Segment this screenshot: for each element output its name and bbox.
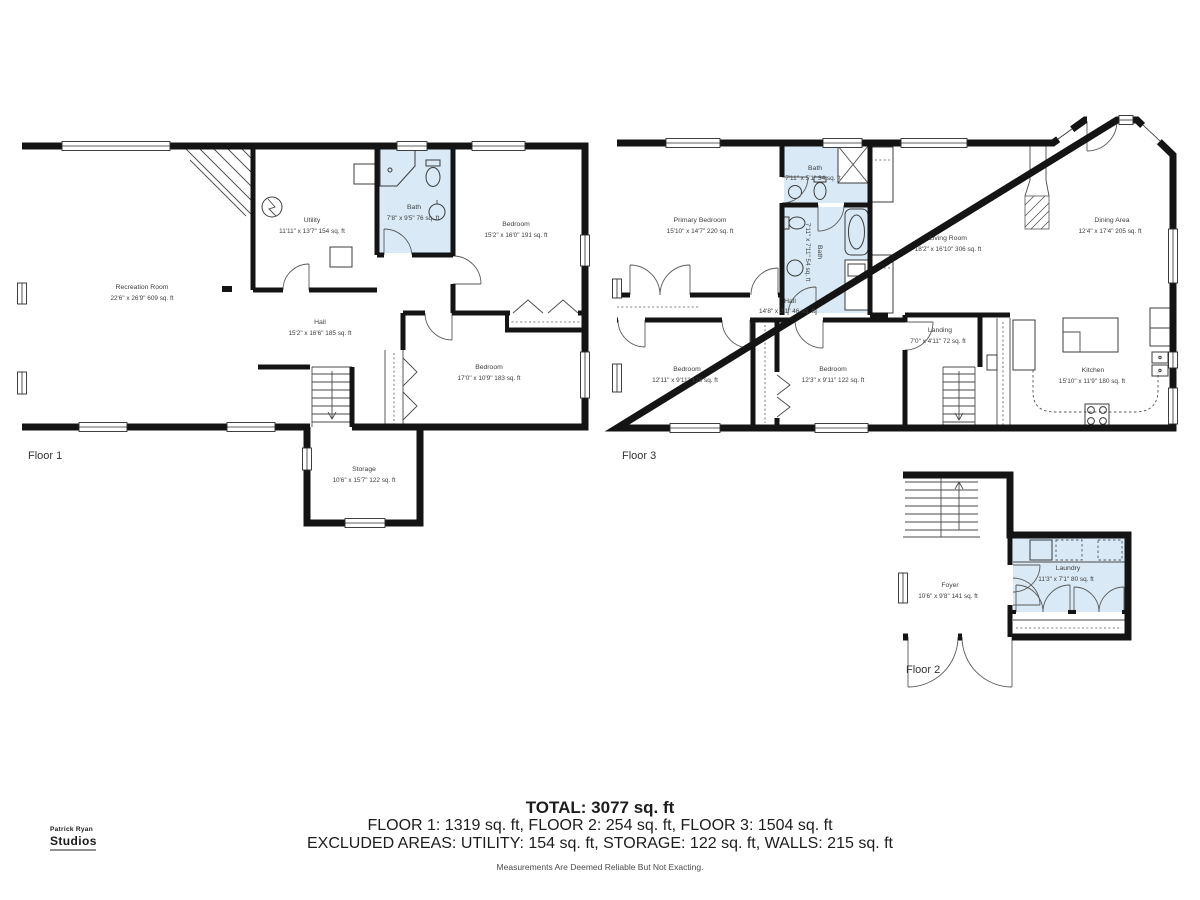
- room-label: Recreation Room: [116, 284, 169, 291]
- floor1-plan: Recreation Room 22'6" x 26'9" 609 sq. ft…: [18, 142, 590, 528]
- room-dims: 10'6" x 15'7" 122 sq. ft: [332, 477, 395, 484]
- fridge-icon: [1150, 308, 1172, 328]
- room-dims: 22'6" x 26'9" 609 sq. ft: [110, 295, 173, 302]
- bifold-door-icon: [403, 358, 417, 420]
- floorplan-drawing: Recreation Room 22'6" x 26'9" 609 sq. ft…: [0, 0, 1200, 780]
- floor2-porch: [1013, 620, 1125, 628]
- floorplan-page: Recreation Room 22'6" x 26'9" 609 sq. ft…: [0, 0, 1200, 900]
- logo-line2: Studios: [50, 835, 97, 847]
- room-dims: 15'2" x 16'6" 185 sq. ft: [288, 330, 351, 337]
- room-label: Kitchen: [1082, 367, 1105, 374]
- room-label: Bath: [808, 165, 822, 172]
- floor2-stairs-icon: [903, 475, 980, 537]
- floor-areas-text: FLOOR 1: 1319 sq. ft, FLOOR 2: 254 sq. f…: [0, 817, 1200, 835]
- utility-closet-icon: [330, 247, 352, 267]
- floor1-stairs-up-icon: [183, 146, 253, 216]
- studio-logo: Patrick Ryan Studios: [50, 827, 97, 851]
- room-label: Bedroom: [475, 364, 503, 371]
- floor3-pantry-closet: [997, 318, 1010, 428]
- room-label: Bedroom: [502, 221, 530, 228]
- room-dims: 12'3" x 9'11" 122 sq. ft: [802, 377, 865, 384]
- room-dims: 14'8" x 3'1" 46 sq. ft: [759, 308, 815, 315]
- room-dims: 11'11" x 13'7" 154 sq. ft: [279, 228, 345, 235]
- room-label: Living Room: [929, 235, 967, 242]
- fireplace-icon: [1025, 146, 1049, 229]
- floor2-plan: Foyer 10'6" x 9'8" 141 sq. ft Laundry 11…: [899, 475, 1129, 687]
- logo-tagline-bar: [50, 849, 96, 851]
- total-area-text: TOTAL: 3077 sq. ft: [0, 799, 1200, 817]
- room-dims: 7'11" x 5'1" 34 sq. ft: [785, 175, 841, 182]
- room-dims: 10'6" x 9'8" 141 sq. ft: [918, 593, 978, 600]
- room-dims: 18'2" x 16'10" 306 sq. ft: [915, 246, 982, 253]
- floor2-windows: [899, 573, 908, 603]
- utility-tub-icon: [354, 164, 376, 184]
- support-post: [222, 286, 232, 292]
- floor3-title: Floor 3: [622, 450, 656, 462]
- floor2-title: Floor 2: [906, 664, 940, 676]
- floor1-title: Floor 1: [28, 450, 62, 462]
- bifold-door-icon: [777, 375, 790, 417]
- area-summary: TOTAL: 3077 sq. ft FLOOR 1: 1319 sq. ft,…: [0, 799, 1200, 872]
- room-label: Bedroom: [673, 366, 701, 373]
- room-label: Dining Area: [1094, 217, 1129, 224]
- room-label: Landing: [928, 327, 952, 334]
- room-label: Bath: [816, 245, 823, 259]
- floor3-plan: Primary Bedroom 15'10" x 14'7" 220 sq. f…: [613, 116, 1178, 463]
- floor3-stairs-icon: [943, 367, 975, 428]
- kitchen-fixtures: [987, 308, 1172, 427]
- room-dims: 15'10" x 14'7" 220 sq. ft: [667, 228, 734, 235]
- wall-oven-icon: [1152, 352, 1168, 363]
- room-label: Primary Bedroom: [674, 217, 727, 224]
- floor1-stairs-down-icon: [312, 367, 352, 427]
- kitchen-cabinet-icon: [1013, 320, 1035, 370]
- room-label: Storage: [352, 466, 376, 473]
- counter-outline: [1033, 370, 1158, 412]
- floor1-room-labels: Recreation Room 22'6" x 26'9" 609 sq. ft…: [28, 204, 548, 484]
- bifold-door-icon: [513, 300, 578, 313]
- room-label: Bath: [407, 204, 421, 211]
- logo-line1: Patrick Ryan: [50, 827, 97, 834]
- room-dims: 17'0" x 10'9" 183 sq. ft: [457, 375, 520, 382]
- excluded-areas-text: EXCLUDED AREAS: UTILITY: 154 sq. ft, STO…: [0, 835, 1200, 853]
- disclaimer-text: Measurements Are Deemed Reliable But Not…: [0, 862, 1200, 872]
- room-dims: 12'4" x 17'4" 205 sq. ft: [1078, 228, 1141, 235]
- room-label: Hall: [314, 319, 326, 326]
- room-dims: 7'8" x 9'5" 76 sq. ft: [387, 215, 440, 222]
- room-label: Bedroom: [819, 366, 847, 373]
- room-dims: 7'11" x 7'11" 54 sq. ft: [804, 223, 811, 282]
- kitchen-island-icon: [1063, 318, 1118, 352]
- room-label: Laundry: [1056, 565, 1081, 572]
- room-dims: 12'11" x 9'11" 128 sq. ft: [652, 377, 718, 384]
- room-dims: 15'2" x 16'0" 191 sq. ft: [484, 232, 547, 239]
- room-dims: 7'0" x 4'11" 72 sq. ft: [910, 338, 966, 345]
- floor2-room-labels: Foyer 10'6" x 9'8" 141 sq. ft Laundry 11…: [906, 565, 1094, 676]
- room-dims: 11'3" x 7'1" 80 sq. ft: [1038, 576, 1094, 583]
- room-label: Utility: [304, 217, 321, 224]
- room-label: Foyer: [941, 582, 959, 589]
- room-dims: 15'10" x 11'9" 180 sq. ft: [1059, 378, 1125, 385]
- room-label: Hall: [784, 298, 796, 305]
- electrical-panel-icon: [262, 197, 282, 217]
